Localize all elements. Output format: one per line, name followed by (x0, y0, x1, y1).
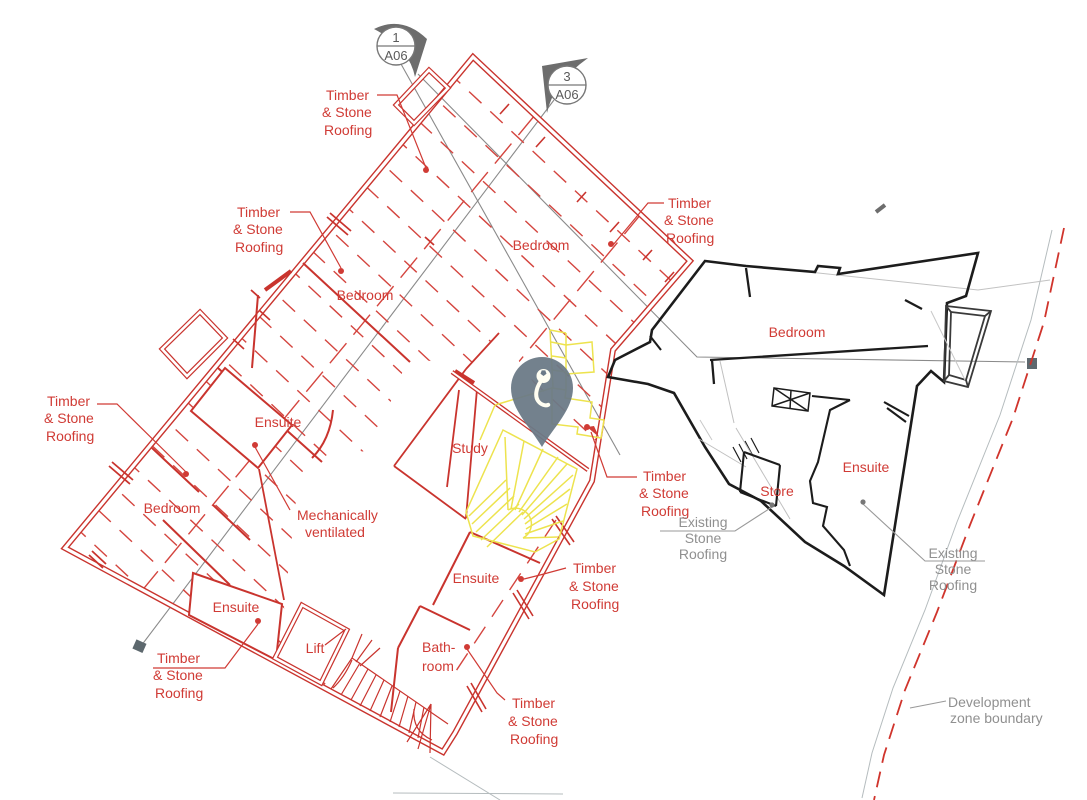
svg-text:Bedroom: Bedroom (144, 500, 201, 516)
svg-text:Bedroom: Bedroom (513, 237, 570, 253)
svg-text:Roofing: Roofing (324, 122, 372, 138)
svg-text:room: room (422, 658, 454, 674)
svg-text:Roofing: Roofing (510, 731, 558, 747)
svg-text:Roofing: Roofing (571, 596, 619, 612)
svg-text:& Stone: & Stone (153, 667, 203, 683)
svg-text:Lift: Lift (306, 640, 325, 656)
svg-text:& Stone: & Stone (233, 221, 283, 237)
svg-text:3: 3 (563, 69, 570, 84)
svg-text:& Stone: & Stone (44, 410, 94, 426)
svg-text:Timber: Timber (573, 560, 616, 576)
svg-text:& Stone: & Stone (569, 578, 619, 594)
svg-text:Timber: Timber (643, 468, 686, 484)
svg-text:Ensuite: Ensuite (453, 570, 500, 586)
svg-text:Bedroom: Bedroom (337, 287, 394, 303)
svg-text:Study: Study (452, 440, 488, 456)
svg-text:Development: Development (948, 694, 1031, 710)
svg-text:Mechanically: Mechanically (297, 507, 378, 523)
svg-text:Roofing: Roofing (46, 428, 94, 444)
svg-text:Timber: Timber (326, 87, 369, 103)
svg-text:Ensuite: Ensuite (255, 414, 302, 430)
svg-text:& Stone: & Stone (322, 104, 372, 120)
svg-text:Ensuite: Ensuite (843, 459, 890, 475)
svg-text:Timber: Timber (47, 393, 90, 409)
svg-text:Bedroom: Bedroom (769, 324, 826, 340)
svg-text:& Stone: & Stone (508, 713, 558, 729)
svg-text:Stone: Stone (935, 561, 972, 577)
svg-text:Roofing: Roofing (666, 230, 714, 246)
svg-text:& Stone: & Stone (639, 485, 689, 501)
svg-text:Stone: Stone (685, 530, 722, 546)
svg-text:1: 1 (392, 30, 399, 45)
svg-text:Store: Store (760, 483, 794, 499)
svg-text:Timber: Timber (237, 204, 280, 220)
svg-text:Timber: Timber (157, 650, 200, 666)
svg-text:Timber: Timber (668, 195, 711, 211)
svg-text:Existing: Existing (928, 545, 977, 561)
svg-text:Roofing: Roofing (235, 239, 283, 255)
svg-text:Ensuite: Ensuite (213, 599, 260, 615)
svg-text:zone boundary: zone boundary (950, 710, 1043, 726)
svg-text:Existing: Existing (678, 514, 727, 530)
svg-text:Roofing: Roofing (155, 685, 203, 701)
svg-text:& Stone: & Stone (664, 212, 714, 228)
svg-text:Timber: Timber (512, 695, 555, 711)
svg-text:Roofing: Roofing (679, 546, 727, 562)
svg-text:ventilated: ventilated (305, 524, 365, 540)
svg-text:Bath-: Bath- (422, 639, 456, 655)
svg-text:Roofing: Roofing (929, 577, 977, 593)
svg-text:A06: A06 (384, 48, 407, 63)
svg-text:A06: A06 (555, 87, 578, 102)
